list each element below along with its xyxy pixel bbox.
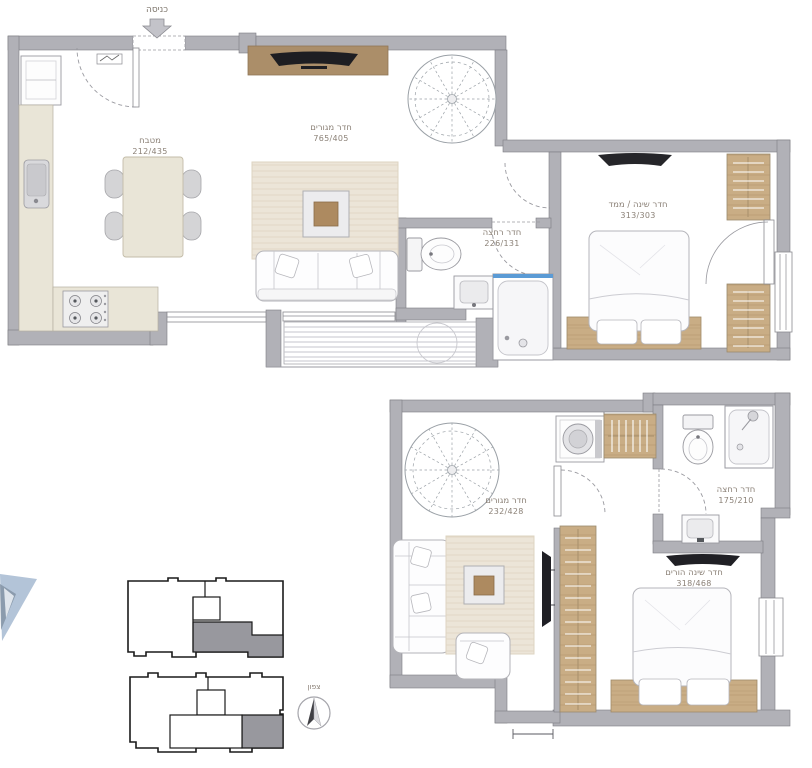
kitchen-sink-icon	[24, 160, 49, 208]
bed-icon	[611, 588, 757, 712]
room-dims: 226/131	[483, 239, 522, 249]
electrical-panel-icon	[97, 54, 122, 64]
room-name: חדר מגורים	[310, 123, 352, 134]
room-label-living-upper: חדר מגורים 765/405	[310, 123, 352, 144]
key-plan-lower	[130, 673, 283, 752]
entrance-label: כניסה	[146, 5, 168, 17]
bedroom-window	[775, 252, 792, 332]
opening-dimension-marks	[513, 729, 553, 739]
toilet-icon	[407, 238, 461, 271]
room-name: חדר מגורים	[485, 496, 527, 507]
corner-sofa-icon	[393, 540, 450, 653]
room-dims: 212/435	[132, 147, 167, 157]
room-dims: 765/405	[310, 134, 352, 144]
toilet-icon	[683, 415, 713, 464]
dining-table	[123, 157, 183, 257]
bathroom-sink-icon	[682, 515, 719, 543]
room-dims: 313/303	[608, 211, 667, 221]
shower-icon	[493, 274, 553, 360]
hall-door-swing-arc	[505, 163, 550, 208]
room-label-bathroom-lower: חדר רחצה 175/210	[717, 485, 756, 506]
entrance-arrow-icon	[143, 19, 171, 38]
lower-floor-plan	[390, 393, 790, 739]
room-dims: 232/428	[485, 507, 527, 517]
floor-plan-graphic	[0, 0, 812, 768]
room-label-kitchen: מטבח 212/435	[132, 136, 167, 157]
sofa-icon	[256, 251, 398, 301]
bedroom-tv-icon	[666, 554, 740, 566]
room-name: חדר שינה הורים	[665, 568, 722, 579]
developer-logo	[0, 574, 37, 641]
north-label: צפון	[307, 682, 320, 692]
spiral-staircase-icon	[408, 55, 496, 143]
fridge-icon	[21, 56, 61, 105]
room-name: חדר שינה / ממד	[608, 200, 667, 211]
armchair-icon	[456, 633, 510, 679]
room-name: חדר רחצה	[717, 485, 756, 496]
tv-icon	[542, 551, 555, 627]
bed-icon	[567, 231, 701, 349]
washing-machine-icon	[556, 416, 604, 462]
balcony-deck	[266, 322, 498, 367]
coffee-table-icon	[303, 191, 349, 237]
north-compass-icon	[298, 697, 330, 729]
room-label-living-lower: חדר מגורים 232/428	[485, 496, 527, 517]
shower-icon	[725, 406, 773, 468]
suite-door	[554, 466, 605, 516]
room-label-bathroom-upper: חדר רחצה 226/131	[483, 228, 522, 249]
coffee-table-icon	[464, 566, 504, 604]
room-dims: 318/468	[665, 579, 722, 589]
bedroom-tv-icon	[598, 153, 672, 166]
upper-floor-plan	[8, 19, 792, 367]
stove-icon	[63, 291, 108, 327]
lower-bedroom-window	[759, 598, 783, 656]
room-name: מטבח	[132, 136, 167, 147]
room-dims: 175/210	[717, 496, 756, 506]
room-name: חדר רחצה	[483, 228, 522, 239]
room-label-bedroom-lower: חדר שינה הורים 318/468	[665, 568, 722, 589]
floor-plan-canvas: כניסה מטבח 212/435 חדר מגורים 765/405 חד…	[0, 0, 812, 768]
wardrobe-icon	[727, 154, 770, 352]
room-label-bedroom-upper: חדר שינה / ממד 313/303	[608, 200, 667, 221]
lower-bathroom-door	[659, 469, 706, 514]
bathroom-sink-icon	[454, 276, 495, 309]
bedroom-door	[706, 220, 774, 284]
balcony-slider-window	[283, 312, 395, 321]
key-plan-upper	[128, 578, 283, 657]
apartment-highlight	[242, 715, 283, 748]
